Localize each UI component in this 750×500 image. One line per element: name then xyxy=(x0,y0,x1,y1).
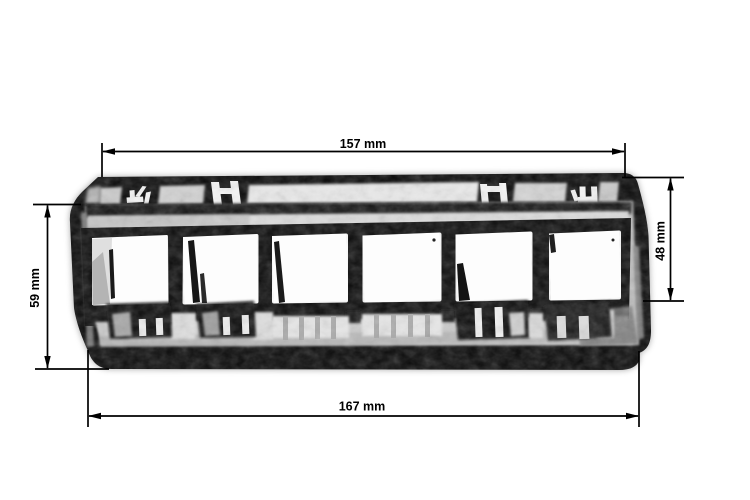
svg-text:157 mm: 157 mm xyxy=(340,137,387,151)
svg-text:59 mm: 59 mm xyxy=(28,268,42,308)
svg-text:167 mm: 167 mm xyxy=(339,400,386,414)
svg-text:48 mm: 48 mm xyxy=(654,221,668,261)
